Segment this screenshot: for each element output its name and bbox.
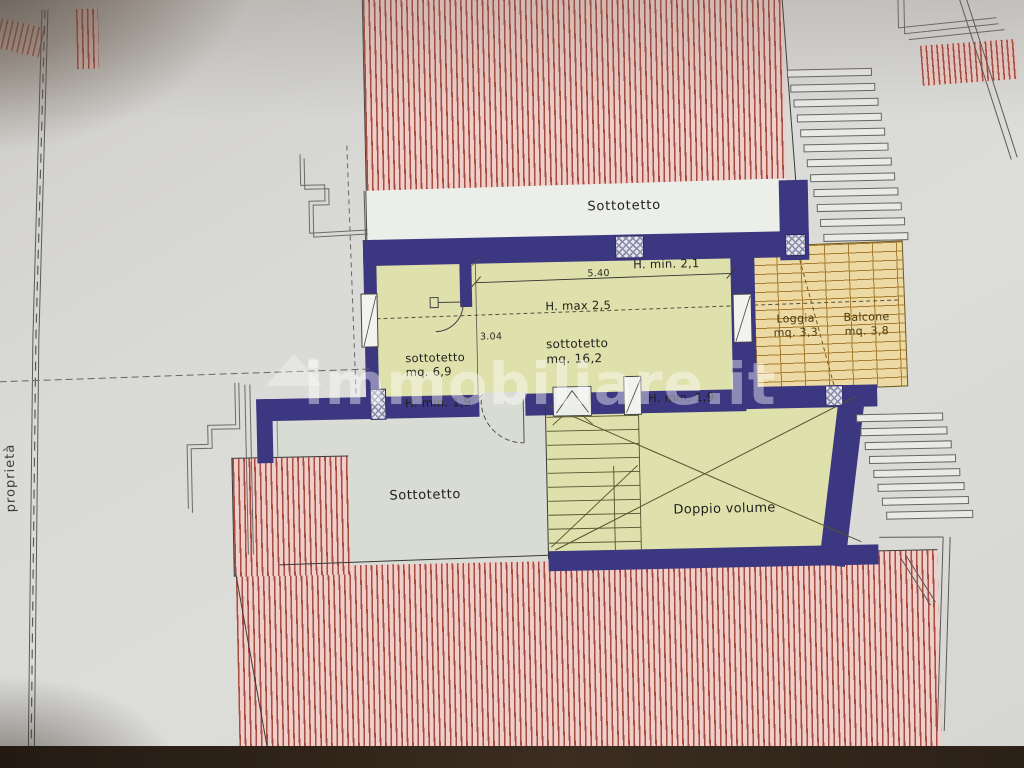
balcone-line2: mq. 3,8 [844, 324, 890, 339]
pillar-hatch-2 [786, 235, 805, 255]
room-main-label: sottotetto mq. 16,2 [546, 336, 609, 367]
double-volume-label: Doppio volume [673, 501, 776, 519]
dim-540-label: 5.40 [587, 268, 610, 280]
roof-hatch-lower-left-strip [231, 455, 350, 576]
h-min-19-right-label: H. min. 1,9 [648, 390, 715, 406]
room-main-line2: mq. 16,2 [546, 351, 608, 367]
loggia-label: Loggia mq. 3,3 [773, 312, 818, 340]
wall-upper-rightside [730, 255, 757, 407]
h-max-25-label: H. max 2,5 [545, 298, 611, 314]
balcone-label: Balcone mq. 3,8 [843, 310, 890, 338]
room-small-label: sottotetto mq. 6,9 [405, 350, 465, 380]
room-small-line1: sottotetto [405, 350, 465, 366]
loggia-line2: mq. 3,3 [774, 325, 819, 340]
roof-hatch-bottom [236, 549, 942, 761]
room-small-line2: mq. 6,9 [405, 364, 465, 380]
railing-slats-lower [857, 412, 973, 519]
loggia-line1: Loggia [773, 312, 818, 327]
wall-lower-left [256, 399, 273, 463]
pillar-hatch-3 [826, 386, 842, 405]
photo-table-edge [0, 746, 1024, 768]
lower-attic-label: Sottotetto [389, 487, 461, 505]
balcone-line1: Balcone [843, 310, 889, 325]
property-label: proprietà [2, 423, 19, 533]
photo-shadow-bottom-left [0, 600, 300, 768]
boundary-dash-horizontal [0, 369, 370, 382]
room-main-line1: sottotetto [546, 336, 608, 352]
h-min-21-label: H. min. 2,1 [633, 256, 700, 272]
pillar-hatch-4 [371, 390, 386, 419]
floorplan-photo: Sottotetto H. min. 2,1 5.40 H. max 2,5 s… [0, 0, 1024, 768]
photo-shade-top [0, 0, 1024, 120]
pillar-hatch-1 [616, 236, 643, 258]
upper-attic-band-label: Sottotetto [587, 198, 661, 216]
dim-304-label: 3.04 [480, 331, 503, 343]
h-min-19-left-label: H. min. 1,9 [405, 395, 472, 411]
door-opening-gap [479, 392, 526, 419]
